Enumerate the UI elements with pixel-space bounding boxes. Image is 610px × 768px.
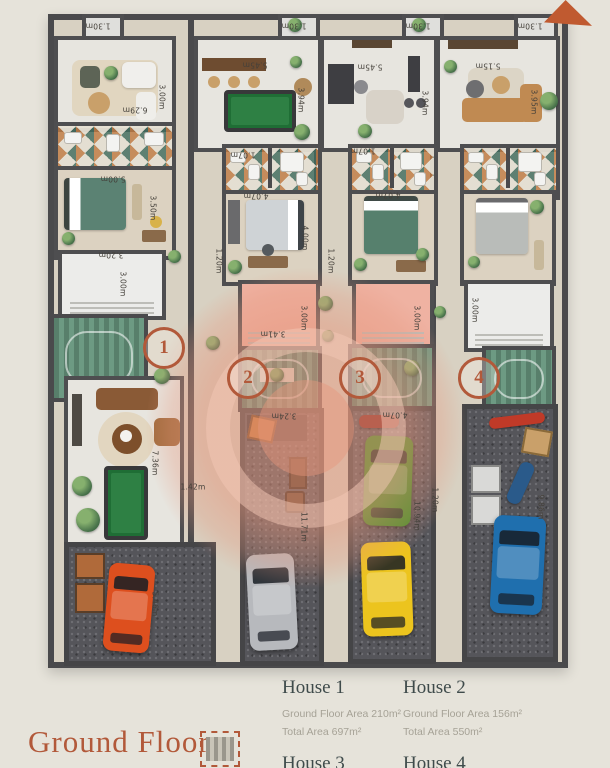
plant bbox=[206, 336, 220, 350]
dimension-label: 5.45m bbox=[242, 61, 267, 70]
dimension-label: 5.15m bbox=[475, 62, 500, 71]
dimension-label: 1.07m bbox=[230, 151, 255, 160]
house4-bedroom bbox=[460, 190, 556, 286]
house1-lounge bbox=[64, 376, 184, 548]
dimension-label: 3.94m bbox=[297, 87, 306, 112]
house-marker-2: 2 bbox=[227, 357, 269, 399]
plant bbox=[168, 250, 181, 263]
house4-living-room bbox=[436, 36, 560, 152]
dimension-label: 5.45m bbox=[357, 63, 382, 72]
dimension-label: 3.41m bbox=[260, 330, 285, 339]
dimension-label: 3.00m bbox=[471, 297, 480, 322]
page: 1.30m1.30m1.30m1.30m6.29m3.00m5.45m3.94m… bbox=[0, 0, 610, 768]
dimension-label: 7.36m bbox=[151, 450, 160, 475]
plant bbox=[318, 296, 333, 311]
plant bbox=[434, 306, 446, 318]
dimension-label: 3.00m bbox=[413, 305, 422, 330]
house1-terrace bbox=[58, 250, 166, 320]
house4-name: House 4 bbox=[403, 753, 523, 768]
dimension-label: 9.86m bbox=[537, 494, 546, 519]
dimension-label: 1.30m bbox=[85, 22, 110, 31]
dimension-label: 4.07m bbox=[382, 411, 407, 420]
dimension-label: 6.29m bbox=[122, 106, 147, 115]
dimension-label: 1.20m bbox=[215, 248, 224, 273]
floor-plan: 1.30m1.30m1.30m1.30m6.29m3.00m5.45m3.94m… bbox=[0, 0, 610, 768]
dimension-label: 1.42m bbox=[180, 483, 205, 492]
legend-column-2: House 2 Ground Floor Area 156m² Total Ar… bbox=[403, 677, 523, 768]
dimension-label: 3.50m bbox=[149, 195, 158, 220]
dimension-label: 3.95m bbox=[530, 89, 539, 114]
blue-car bbox=[489, 515, 546, 616]
plant bbox=[322, 330, 334, 342]
house1-ground-area: Ground Floor Area 210m² bbox=[282, 708, 402, 720]
dimension-label: 1.20m bbox=[431, 487, 440, 512]
silver-car bbox=[246, 553, 299, 651]
page-title: Ground Floor bbox=[28, 724, 210, 760]
dimension-label: 3.00m bbox=[119, 271, 128, 296]
dimension-label: 3.20m bbox=[98, 251, 123, 260]
motorcycle bbox=[505, 460, 537, 506]
legend-column-1: House 1 Ground Floor Area 210m² Total Ar… bbox=[282, 677, 402, 768]
house3-terrace bbox=[352, 280, 434, 350]
dimension-label: 5.46m bbox=[151, 591, 160, 616]
dimension-label: 1.30m bbox=[405, 22, 430, 31]
orange-car bbox=[102, 562, 155, 654]
dimension-label: 1.07m bbox=[350, 147, 375, 156]
house2-total-area: Total Area 550m² bbox=[403, 726, 523, 738]
yellow-car bbox=[360, 541, 413, 637]
dimension-label: 5.00m bbox=[100, 175, 125, 184]
house3-name: House 3 bbox=[282, 753, 402, 768]
dimension-label: 4.07m bbox=[375, 191, 400, 200]
house-marker-3: 3 bbox=[339, 357, 381, 399]
dimension-label: 3.00m bbox=[158, 84, 167, 109]
house1-name: House 1 bbox=[282, 677, 402, 699]
dimension-label: 4.07m bbox=[243, 192, 268, 201]
dimension-label: 3.24m bbox=[271, 412, 296, 421]
house2-name: House 2 bbox=[403, 677, 523, 699]
green-car bbox=[362, 435, 413, 527]
dimension-label: 1.30m bbox=[281, 22, 306, 31]
house-marker-4: 4 bbox=[458, 357, 500, 399]
dimension-label: 1.20m bbox=[327, 248, 336, 273]
dimension-label: 4.00m bbox=[301, 225, 310, 250]
kayak bbox=[489, 412, 546, 430]
dimension-label: 3.00m bbox=[300, 305, 309, 330]
house-marker-1: 1 bbox=[143, 327, 185, 369]
dimension-label: 3.94m bbox=[421, 90, 430, 115]
house2-ground-area: Ground Floor Area 156m² bbox=[403, 708, 523, 720]
dimension-label: 10.94m bbox=[413, 501, 422, 531]
house1-total-area: Total Area 697m² bbox=[282, 726, 402, 738]
house3-bedroom bbox=[348, 190, 438, 286]
dimension-label: 11.71m bbox=[300, 512, 309, 542]
dimension-label: 1.30m bbox=[517, 22, 542, 31]
floorplan-thumbnail bbox=[200, 731, 240, 767]
